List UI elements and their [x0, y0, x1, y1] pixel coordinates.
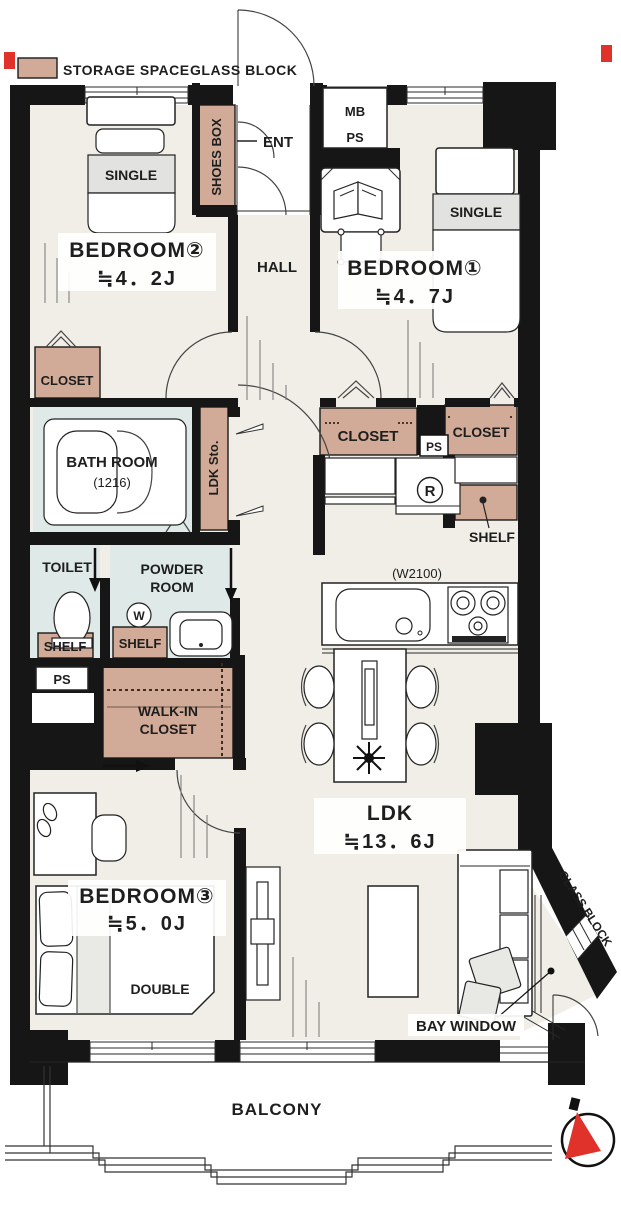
kitchen-shelf-top [455, 457, 517, 483]
balcony-label: BALCONY [231, 1100, 322, 1119]
kitchen-width-label: (W2100) [392, 566, 442, 581]
toilet-label: TOILET [42, 559, 92, 575]
wic-line2: CLOSET [140, 721, 197, 737]
legend-swatch [18, 58, 57, 78]
shoes-box-label: SHOES BOX [209, 118, 224, 196]
bedroom2-bed-label: SINGLE [105, 167, 157, 183]
bedroom1-area: ≒4．7J [375, 286, 455, 308]
shelf-kitchen-label: SHELF [469, 529, 515, 545]
kitchen-cabinets [325, 458, 395, 504]
plant-icon [353, 742, 385, 774]
ps-label-bottom: PS [53, 672, 71, 687]
bathtub [44, 419, 186, 525]
hall-label: HALL [257, 259, 297, 276]
ldk-area: ≒13．6J [343, 831, 436, 853]
red-mark-right [601, 45, 612, 62]
wic-line1: WALK-IN [138, 703, 198, 719]
red-mark-left [4, 52, 15, 69]
closet-right-label: CLOSET [453, 424, 510, 440]
sideboard [368, 886, 418, 997]
powder-room-line1: POWDER [141, 561, 204, 577]
ent-label: ENT [263, 134, 293, 151]
bedroom3-area: ≒5．0J [107, 913, 187, 935]
bedroom1-bed-label: SINGLE [450, 204, 502, 220]
bedroom2-area: ≒4．2J [97, 268, 177, 290]
bay-window-label: BAY WINDOW [416, 1018, 517, 1035]
kitchen-counter [322, 583, 518, 653]
kitchen-sink [336, 589, 430, 641]
chair-bedroom3 [92, 815, 126, 861]
ldk-name: LDK [367, 802, 413, 825]
shelf-powder-label: SHELF [119, 636, 162, 651]
mb-label: MB [345, 104, 365, 119]
ldk-storage-label: LDK Sto. [206, 441, 221, 496]
floor-plan: STORAGE SPACE GLASS BLOCK BEDROOM② ≒4．2J… [0, 0, 621, 1208]
bathroom-label: BATH ROOM [66, 454, 157, 471]
bedroom2-name: BEDROOM② [69, 239, 204, 262]
bedroom3-name: BEDROOM③ [79, 885, 214, 908]
bathroom-size: (1216) [93, 475, 131, 490]
pipe-space-void [32, 693, 94, 723]
closet-left-label: CLOSET [338, 428, 399, 445]
washbasin [170, 612, 232, 656]
washer-symbol: W [133, 609, 145, 623]
gas-stove [448, 587, 508, 643]
glass-block-top-label: GLASS BLOCK [190, 62, 297, 78]
ps-label-mid: PS [426, 440, 442, 454]
floor-plan-canvas: STORAGE SPACE GLASS BLOCK BEDROOM② ≒4．2J… [0, 0, 621, 1208]
ps-label-top: PS [346, 130, 364, 145]
bedroom2-closet-label: CLOSET [41, 373, 94, 388]
refrigerator-symbol: R [425, 483, 436, 500]
shelf-toilet-label: SHELF [44, 639, 87, 654]
powder-room-line2: ROOM [150, 579, 194, 595]
legend-storage-label: STORAGE SPACE [63, 62, 190, 78]
bedroom1-name: BEDROOM① [347, 257, 482, 280]
shelf-dot [480, 497, 487, 504]
bed-bedroom2 [87, 97, 175, 233]
bedroom3-bed-label: DOUBLE [130, 981, 189, 997]
tv-board [246, 867, 280, 1000]
